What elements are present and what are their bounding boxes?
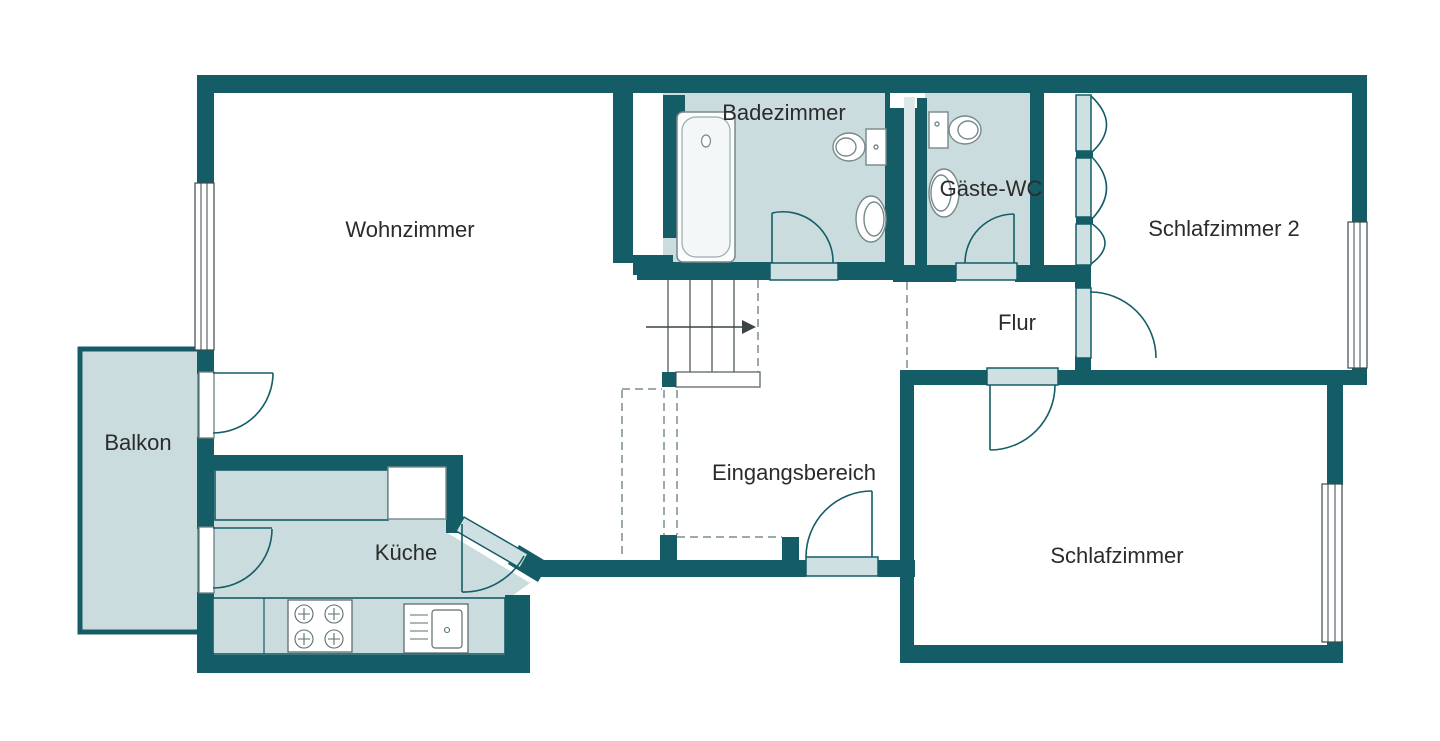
wall-schlaf-bottom: [900, 645, 1343, 663]
closet-door-leaf-1: [1076, 95, 1091, 151]
wall-bad-right: [885, 93, 905, 265]
floor-plan: Wohnzimmer Badezimmer Gäste-WC Schlafzim…: [0, 0, 1440, 741]
sill-balkon-wohnzimmer: [199, 372, 214, 438]
door-schlafzimmer-2: [1090, 292, 1156, 358]
wall-top: [197, 75, 1367, 93]
wall-wz-left-c: [197, 437, 214, 529]
label-schlafzimmer-2: Schlafzimmer 2: [1148, 216, 1300, 241]
closet-door-leaf-3: [1076, 224, 1091, 265]
sill-gaeste-wc: [956, 263, 1017, 280]
kitchen-sink: [404, 604, 468, 653]
wall-entry-stub-a: [660, 535, 677, 577]
label-balkon: Balkon: [104, 430, 171, 455]
door-entry: [806, 491, 872, 557]
wall-kueche-right: [446, 455, 463, 533]
label-badezimmer: Badezimmer: [722, 100, 845, 125]
door-balkon-wohnzimmer: [213, 373, 273, 433]
window-wohnzimmer: [195, 183, 214, 350]
balkon-floor: [80, 349, 200, 632]
stairs-landing: [676, 372, 760, 387]
wall-sz2-right-top: [1352, 93, 1367, 223]
sill-badezimmer: [770, 263, 838, 280]
sill-entry-door: [806, 557, 878, 576]
wall-schlaf-right-top: [1327, 385, 1343, 485]
stove: [288, 600, 352, 652]
window-schlafzimmer-2: [1348, 222, 1367, 368]
bathroom-washbasin: [856, 196, 886, 242]
dashed-boundaries: [622, 282, 907, 558]
wall-schlaf-left: [900, 370, 914, 663]
wall-bad-bottom-a: [637, 262, 772, 280]
sill-schlafzimmer: [987, 368, 1058, 385]
kitchen-counter-top: [215, 467, 446, 520]
wall-wz-left-d: [197, 592, 214, 656]
bathtub: [677, 112, 735, 262]
wall-wz-left-a: [197, 93, 214, 183]
closet-niche: [1044, 93, 1076, 265]
wall-kueche-corner: [505, 595, 530, 673]
closet-door-swings: [1091, 96, 1107, 264]
wall-wz-left-b: [197, 350, 214, 374]
wall-wz-right: [613, 93, 633, 263]
label-eingangsbereich: Eingangsbereich: [712, 460, 876, 485]
wall-entry-stub-b: [782, 537, 799, 577]
sill-balkon-kueche: [199, 527, 214, 593]
closet-door-leaf-2: [1076, 158, 1091, 217]
label-flur: Flur: [998, 310, 1036, 335]
duct-strip: [904, 97, 915, 265]
kitchen-appliance: [388, 467, 446, 519]
stairs: [646, 280, 760, 387]
bathtub-drain: [702, 135, 711, 147]
label-gaeste-wc: Gäste-WC: [940, 176, 1043, 201]
label-schlafzimmer: Schlafzimmer: [1050, 543, 1183, 568]
label-kueche: Küche: [375, 540, 437, 565]
wall-kueche-bottom: [197, 655, 530, 673]
wall-flur-bottom-b: [1058, 370, 1367, 385]
stairs-landing-post: [662, 372, 676, 387]
sill-schlafzimmer-2: [1076, 288, 1091, 358]
window-schlafzimmer: [1322, 484, 1342, 642]
wall-shaft: [915, 98, 927, 265]
wall-wc-bottom-a: [893, 265, 956, 282]
wall-flur-stub-top: [1075, 267, 1091, 288]
stairs-direction-arrow: [646, 320, 756, 334]
label-wohnzimmer: Wohnzimmer: [345, 217, 474, 242]
door-schlafzimmer: [990, 385, 1055, 450]
